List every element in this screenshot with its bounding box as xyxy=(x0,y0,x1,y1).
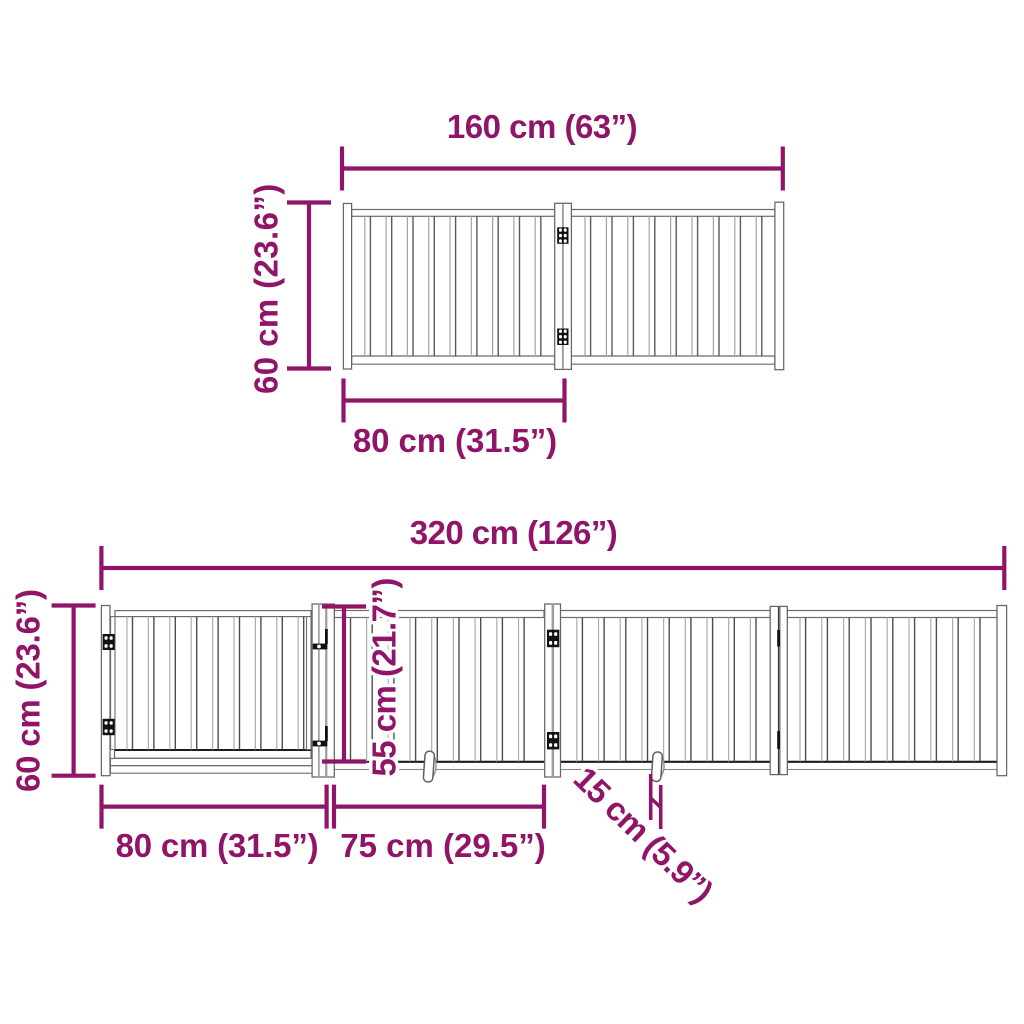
svg-text:320 cm (126”): 320 cm (126”) xyxy=(410,514,617,551)
svg-text:160 cm (63”): 160 cm (63”) xyxy=(447,108,637,145)
svg-text:80 cm (31.5”): 80 cm (31.5”) xyxy=(353,422,557,459)
svg-text:75 cm (29.5”): 75 cm (29.5”) xyxy=(340,827,545,864)
svg-text:60 cm (23.6”): 60 cm (23.6”) xyxy=(248,183,285,394)
svg-text:15 cm (5.9”): 15 cm (5.9”) xyxy=(567,759,720,909)
svg-text:60 cm (23.6”): 60 cm (23.6”) xyxy=(10,589,47,792)
svg-text:55 cm (21.7”): 55 cm (21.7”) xyxy=(366,578,403,776)
svg-text:80 cm (31.5”): 80 cm (31.5”) xyxy=(116,827,319,864)
